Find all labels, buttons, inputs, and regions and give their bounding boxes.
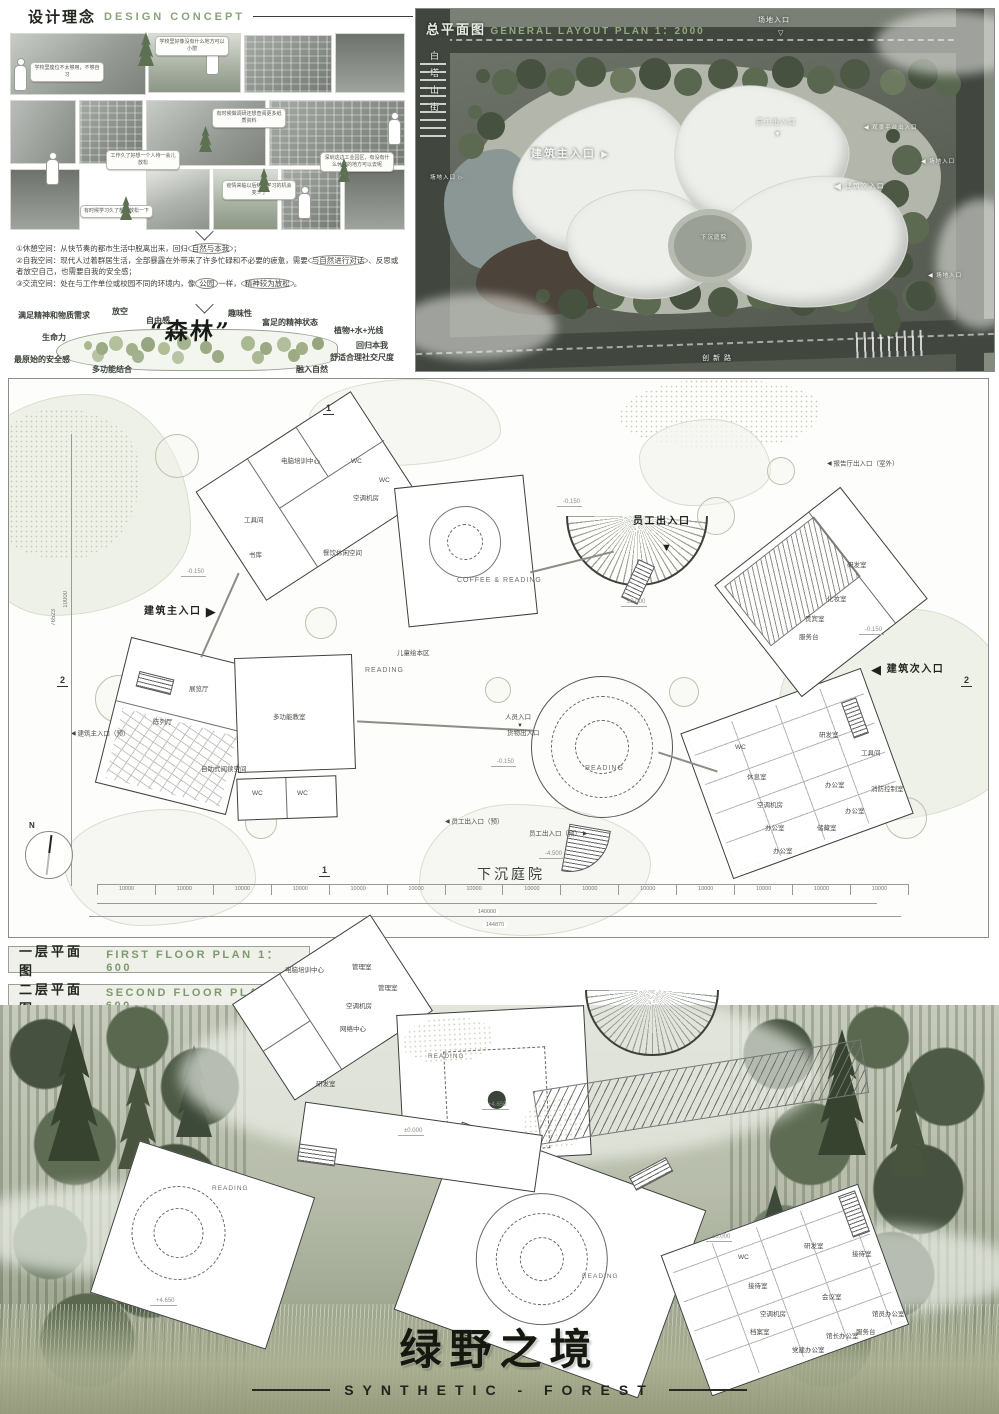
entrance-label-side: ◀ 建筑次入口 — [871, 663, 944, 676]
label-text: 场地入口 — [936, 273, 962, 279]
person-sketch — [46, 152, 59, 185]
room-label: 空调机房 — [757, 803, 783, 810]
title-rule — [253, 16, 413, 17]
dim-value: 10000 — [676, 885, 734, 895]
caption-zh: 一层平面图 — [19, 941, 96, 979]
point-circled: 自然与本我 — [188, 243, 234, 254]
room-label: 工具间 — [244, 518, 264, 525]
point-text: 。 — [294, 279, 302, 288]
view-platform-label: ◀ 观景平台出入口 — [864, 123, 918, 131]
room-label: 储藏室 — [817, 826, 837, 833]
concept-photo — [344, 169, 405, 230]
arrow-down-icon: ▽ — [778, 29, 784, 37]
dim-value: 10000 — [560, 885, 618, 895]
side-entry-label: ◀ 建筑次入口 — [834, 181, 885, 191]
room-label: 儿童绘本区 — [397, 651, 430, 658]
dim-value: 10000 — [792, 885, 850, 895]
first-floor-plan: 建筑主入口 ▶ 员工出入口 ▼ ◀ 建筑次入口 人员入口 ▼ 货物出入口 ◀ 员… — [8, 378, 989, 938]
room-label: 办公室 — [825, 783, 845, 790]
sunken-courtyard — [668, 209, 752, 283]
fir-tree-icon — [199, 126, 212, 152]
point-circled: 与自然进行对话 — [308, 255, 369, 266]
person-sketch — [14, 58, 27, 91]
room-label: WC — [735, 745, 746, 752]
cloud-word: 多功能结合 — [92, 364, 132, 375]
dim-value: 10000 — [329, 885, 387, 895]
project-subtitle: SYNTHETIC - FOREST — [0, 1382, 999, 1398]
cloud-word: 融入自然 — [296, 364, 328, 375]
room-label: 研发室 — [847, 563, 867, 570]
concept-photo — [244, 35, 332, 93]
dim-value: 76523 — [51, 609, 57, 626]
band-trees — [84, 341, 92, 350]
label-text: 观景平台出入口 — [872, 125, 918, 131]
speech-bubble: 工作久了好想一个人待一会儿放松 — [106, 150, 180, 170]
mist — [700, 1225, 999, 1315]
dim-value: 10000 — [63, 591, 69, 608]
label-text: 建筑次入口 — [845, 183, 885, 190]
room-label: 化妆室 — [827, 597, 847, 604]
room-label: 自助式阅读空间 — [201, 767, 247, 774]
point-text: 一样， — [218, 279, 241, 288]
entrance-label-staff: 员工出入口 — [633, 517, 691, 527]
speech-bubble: 学校里座位不太够用，不够自习 — [30, 62, 104, 82]
room-label: WC — [379, 478, 390, 485]
dim-value: 144870 — [483, 922, 507, 928]
dash-rule — [669, 1389, 747, 1391]
point-text: ①休憩空间：从快节奏的都市生活中脱离出来，回归 — [16, 244, 188, 253]
fir-tree-icon — [138, 32, 154, 66]
label-text: 建筑主入口 — [144, 606, 202, 617]
dim-value: 140000 — [475, 909, 499, 915]
arrow-left-icon: ◀ — [834, 182, 842, 191]
dim-value: 10000 — [445, 885, 503, 895]
tree-icon — [155, 434, 199, 478]
dim-value: 10000 — [850, 885, 909, 895]
tree-icon — [767, 457, 795, 485]
cloud-word: 趣味性 — [228, 308, 252, 319]
section-marker: 2 — [57, 675, 68, 687]
project-title-zh: 绿野之境 — [399, 1325, 599, 1374]
room-label: 电脑培训中心 — [281, 459, 320, 466]
dim-value: 10000 — [387, 885, 445, 895]
concept-photo — [10, 100, 76, 164]
room-label: 研发室 — [819, 733, 839, 740]
concept-points: ①休憩空间：从快节奏的都市生活中脱离出来，回归自然与本我； ②自我空间：现代人过… — [16, 243, 402, 290]
arrow-down-icon: ▼ — [517, 723, 523, 729]
project-title-en: SYNTHETIC - FOREST — [344, 1382, 655, 1398]
floor1-caption: 一层平面图 FIRST FLOOR PLAN 1：600 — [8, 946, 310, 973]
room-label: 管理室 — [352, 965, 372, 972]
label-text: 场地入口 — [430, 175, 456, 181]
site-plan-section: 总平面图 GENERAL LAYOUT PLAN 1：2000 白塔山街 场地入… — [415, 8, 995, 372]
cloud — [936, 199, 995, 329]
room-label: 书库 — [249, 553, 262, 560]
cloud-word: 自由感 — [146, 315, 170, 326]
level-label: ±0.000 — [621, 599, 647, 607]
room-label: 餐饮休闲空间 — [323, 551, 362, 558]
dim-value: 10000 — [271, 885, 329, 895]
partition — [285, 778, 287, 818]
site-title-en: GENERAL LAYOUT PLAN 1：2000 — [490, 26, 704, 37]
level-label: -0.150 — [557, 499, 582, 507]
concept-photo — [146, 169, 210, 230]
person-sketch — [298, 186, 311, 219]
street-name-left: 白塔山街 — [428, 51, 441, 119]
section-marker: 1 — [323, 403, 334, 415]
point-text: ②自我空间：现代人过着群居生活，全部暴露在外带来了许多忙碌和不必要的疲惫，需要 — [16, 256, 308, 265]
entrance-label-goods: 货物出入口 — [507, 731, 540, 738]
staff-entry-label: 员工出入口 — [756, 117, 796, 127]
entrance-label-people: 人员入口 — [505, 715, 531, 722]
auditorium-seating — [724, 516, 861, 646]
tree-cluster — [476, 69, 490, 83]
dim-value: 10000 — [618, 885, 676, 895]
person-sketch — [388, 112, 401, 145]
concept-photo — [10, 169, 80, 230]
arrow-left-icon: ◀ — [928, 273, 934, 279]
dim-value: 10000 — [502, 885, 560, 895]
site-title-zh: 总平面图 — [426, 22, 486, 37]
label-text: 员工出入口（预） — [451, 819, 503, 826]
presentation-board: 设计理念 DESIGN CONCEPT 学校里座位不太够用，不够自习 — [0, 0, 999, 1414]
mist — [180, 1005, 820, 1165]
level-label: -4.500 — [539, 851, 564, 859]
room-label: 展览厅 — [189, 687, 209, 694]
entrance-label-main: 建筑主入口 ▶ — [144, 605, 217, 618]
speech-bubble: 有时候学习久了想要放松一下 — [80, 205, 153, 218]
reading-label: READING — [365, 667, 404, 674]
room-label: 办公室 — [773, 849, 793, 856]
room-label: WC — [351, 459, 362, 466]
room-label: 消防控制室 — [871, 787, 904, 794]
level-label: -0.150 — [181, 569, 206, 577]
north-label: N — [29, 821, 35, 830]
project-title: 绿野之境 — [0, 1316, 999, 1377]
arrow-left-icon: ◀ — [445, 819, 450, 825]
concept-point: ②自我空间：现代人过着群居生活，全部暴露在外带来了许多忙碌和不必要的疲惫，需要与… — [16, 255, 402, 278]
point-text: ； — [233, 244, 241, 253]
partition — [247, 459, 318, 567]
site-entry-label: ◀ 场地入口 — [928, 271, 962, 279]
room-label: 管理室 — [378, 986, 398, 993]
dim-value: 10000 — [734, 885, 792, 895]
room-label: 休息室 — [747, 775, 767, 782]
cloud-word: 满足精神和物质需求 — [18, 310, 90, 321]
room-label: WC — [297, 791, 308, 798]
office-grid — [688, 676, 906, 872]
section-marker: 2 — [961, 675, 972, 687]
point-circled: 公园 — [195, 278, 218, 289]
dimension-overall: 144870 — [89, 916, 901, 935]
label-text: 报告厅出入口（室外） — [833, 461, 898, 468]
tree-icon — [485, 677, 511, 703]
speech-bubble: 学校里好像没有什么地方可以小憩 — [155, 36, 229, 56]
dimension-row: 1000010000100001000010000100001000010000… — [97, 884, 909, 895]
dim-value: 10000 — [155, 885, 213, 895]
label-text: 场地入口 — [929, 159, 955, 165]
street-name-bottom: 创新路 — [702, 353, 735, 363]
label-text: 建筑次入口 — [887, 664, 945, 675]
level-label: -0.150 — [859, 627, 884, 635]
arrow-left-icon: ◀ — [921, 159, 927, 165]
landscape-blob — [639, 419, 771, 506]
arrow-right-icon: ▷ — [459, 175, 464, 181]
site-plan-title: 总平面图 GENERAL LAYOUT PLAN 1：2000 — [426, 19, 705, 39]
room-label: WC — [252, 791, 263, 798]
dim-value: 10000 — [213, 885, 271, 895]
entrance-label-staff-res: 员工出入口（预） ▶ — [529, 831, 587, 838]
room-label: 办公室 — [765, 826, 785, 833]
room-label: 办公室 — [845, 809, 865, 816]
speech-bubble: 有时候做调研还想查阅更多纸质资料 — [212, 108, 286, 128]
speech-bubble: 深圳这边工业园区，有没有什么休憩的地方可以去呢 — [320, 152, 394, 172]
arrow-right-icon: ▶ — [601, 150, 610, 159]
cloud-word: 植物+水+光线 — [334, 325, 383, 336]
tree-cluster — [468, 105, 482, 119]
concept-photo — [281, 169, 341, 230]
concept-photo — [335, 33, 405, 93]
site-entry-label: 场地入口 ▷ — [430, 173, 464, 181]
site-entry-label: 场地入口 — [758, 15, 790, 25]
partition — [296, 427, 328, 476]
main-entry-label: 建筑主入口 ▶ — [531, 145, 610, 161]
level-label: -0.150 — [491, 759, 516, 767]
entrance-label-staff-res: ◀ 员工出入口（预） — [445, 819, 503, 826]
point-text: ③交流空间：处在与工作单位或校园不同的环境内，像 — [16, 279, 195, 288]
concept-point: ③交流空间：处在与工作单位或校园不同的环境内，像公园一样，精神较为放松。 — [16, 278, 402, 290]
cloud-word: 生命力 — [42, 332, 66, 343]
reading-label: COFFEE & READING — [457, 577, 542, 584]
concept-title-zh: 设计理念 — [28, 6, 96, 27]
arrow-down-icon: ▼ — [661, 543, 672, 554]
tree-icon — [305, 607, 337, 639]
room-label: 贵宾室 — [805, 617, 825, 624]
arrow-left-icon: ◀ — [871, 663, 883, 676]
label-text: 建筑主入口 — [531, 148, 596, 160]
dimension-vertical — [71, 434, 72, 886]
cloud-word: 最原始的安全感 — [14, 354, 70, 365]
dim-value: 10000 — [97, 885, 155, 895]
courtyard-label: 下沉庭院 — [477, 867, 545, 881]
chevron-down-icon — [195, 295, 213, 313]
label-text: 场地入口 — [758, 17, 790, 24]
tree-cluster — [536, 289, 550, 303]
arrow-left-icon: ◀ — [864, 125, 870, 131]
cloud-word: 舒适合理社交尺度 — [330, 352, 394, 363]
entrance-label-main-res: ◀ 建筑主入口（预） — [71, 731, 129, 738]
section-marker: 1 — [319, 865, 330, 877]
cloud-word: 放空 — [112, 306, 128, 317]
arrow-down-icon: ▼ — [774, 131, 782, 138]
crosswalk — [856, 330, 927, 358]
room-label: 工具间 — [861, 751, 881, 758]
fir-tree-icon — [258, 168, 270, 192]
cloud-word: 富足的精神状态 — [262, 317, 318, 328]
wing-coffee-reading — [394, 475, 538, 628]
entrance-label-hall: ◀ 报告厅出入口（室外） — [827, 461, 898, 468]
reading-label: READING — [585, 765, 624, 772]
site-entry-label: ◀ 场地入口 — [921, 157, 955, 165]
cloud-word: 回归本我 — [356, 340, 388, 351]
arrow-left-icon: ◀ — [827, 461, 832, 467]
room-label: 陈列厅 — [153, 720, 173, 727]
caption-en: FIRST FLOOR PLAN 1：600 — [106, 946, 299, 974]
arrow-right-icon: ▶ — [206, 605, 218, 618]
tree-cluster — [886, 129, 900, 143]
concept-point: ①休憩空间：从快节奏的都市生活中脱离出来，回归自然与本我； — [16, 243, 402, 255]
dash-rule — [252, 1389, 330, 1391]
concept-title-en: DESIGN CONCEPT — [104, 11, 245, 23]
point-circled: 精神较为放松 — [241, 278, 294, 289]
wing-wc — [236, 775, 337, 820]
north-compass — [25, 831, 73, 879]
tree-icon — [669, 677, 699, 707]
fir-tree-icon — [120, 196, 132, 220]
label-text: 建筑主入口（预） — [77, 731, 129, 738]
design-concept-section: 设计理念 DESIGN CONCEPT 学校里座位不太够用，不够自习 — [0, 0, 410, 375]
courtyard-label: 下沉庭院 — [701, 233, 727, 241]
fir-tree-icon — [338, 158, 350, 182]
room-label: 多功能教室 — [273, 715, 306, 722]
room-label: 服务台 — [799, 635, 819, 642]
arrow-right-icon: ▶ — [583, 831, 588, 837]
room-label: 空调机房 — [353, 496, 379, 503]
label-text: 员工出入口（预） — [529, 831, 581, 838]
